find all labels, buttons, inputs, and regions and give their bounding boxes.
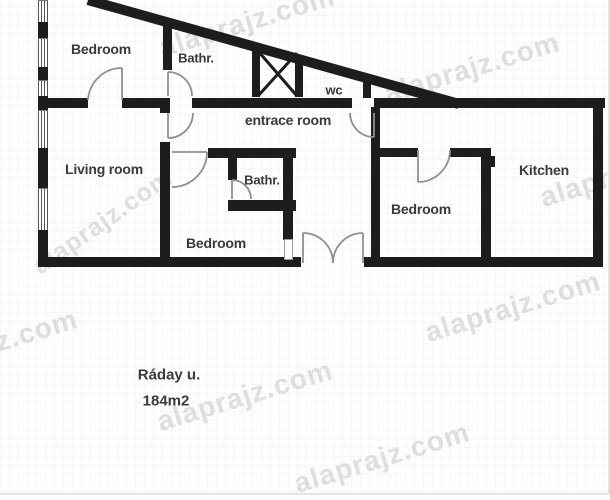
sloped-wall (88, 0, 459, 104)
floor-area: 184m2 (143, 393, 190, 410)
room-label-bedroom-right: Bedroom (391, 201, 451, 217)
room-label-kitchen: Kitchen (519, 162, 569, 178)
floor-plan-canvas: alaprajz.com alaprajz.com alaprajz.com a… (0, 0, 610, 495)
room-label-wc: wc (326, 83, 343, 98)
room-label-bedroom-top-left: Bedroom (71, 41, 131, 57)
street-name: Ráday u. (138, 367, 201, 384)
room-label-bathroom-top: Bathr. (178, 51, 214, 66)
plan-linework (0, 0, 610, 495)
room-label-bedroom-middle: Bedroom (186, 235, 246, 251)
room-label-living-room: Living room (65, 161, 143, 177)
room-label-entrance: entrace room (245, 112, 331, 128)
room-label-bathroom-middle: Bathr. (244, 173, 280, 188)
